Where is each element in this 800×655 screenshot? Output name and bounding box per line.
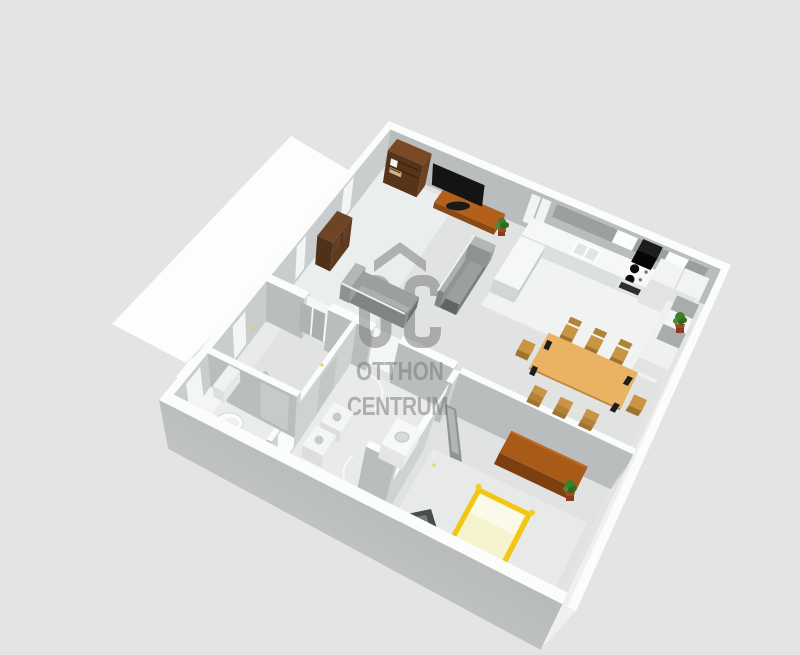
svg-text:CENTRUM: CENTRUM	[347, 392, 448, 421]
svg-text:OTTHON: OTTHON	[356, 357, 444, 386]
